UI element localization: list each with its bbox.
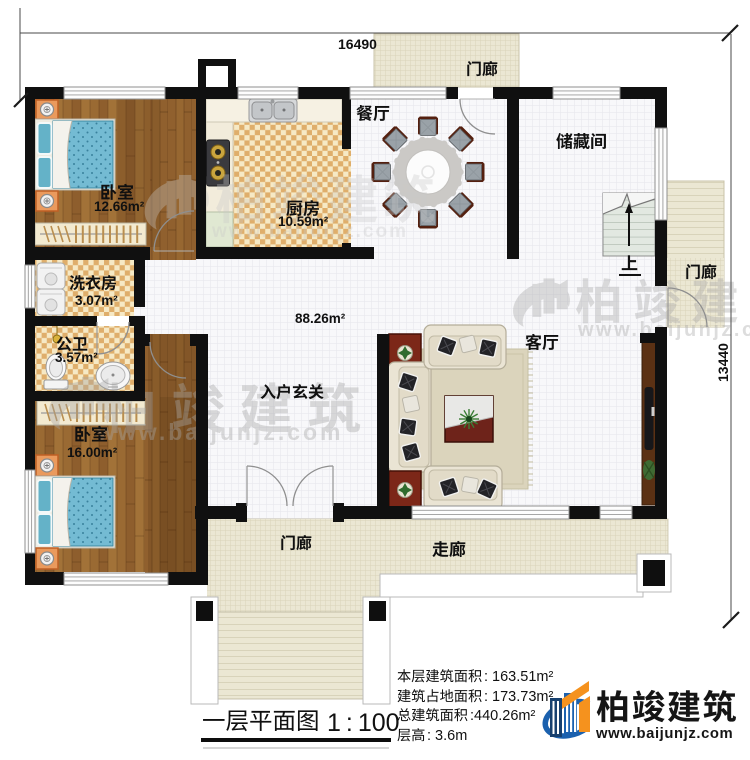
svg-text:www.baijunjz.com: www.baijunjz.com [595,726,733,742]
svg-text:16490: 16490 [338,36,377,52]
svg-text:3.07m²: 3.07m² [75,293,118,308]
svg-text:12.66m²: 12.66m² [94,199,145,214]
svg-text:10.59m²: 10.59m² [278,214,329,229]
svg-text:88.26m²: 88.26m² [295,311,346,326]
svg-text:1 : 100: 1 : 100 [327,709,400,737]
svg-text:: 3.6m: : 3.6m [427,728,467,744]
svg-text:: 163.51m²: : 163.51m² [484,669,553,685]
svg-text::440.26m²: :440.26m² [470,708,535,724]
svg-text:3.57m²: 3.57m² [55,350,98,365]
svg-text:www.baijunjz.com: www.baijunjz.com [96,419,344,445]
svg-text:16.00m²: 16.00m² [67,445,118,460]
svg-text:13440: 13440 [715,343,731,382]
svg-text:: 173.73m²: : 173.73m² [484,689,553,705]
